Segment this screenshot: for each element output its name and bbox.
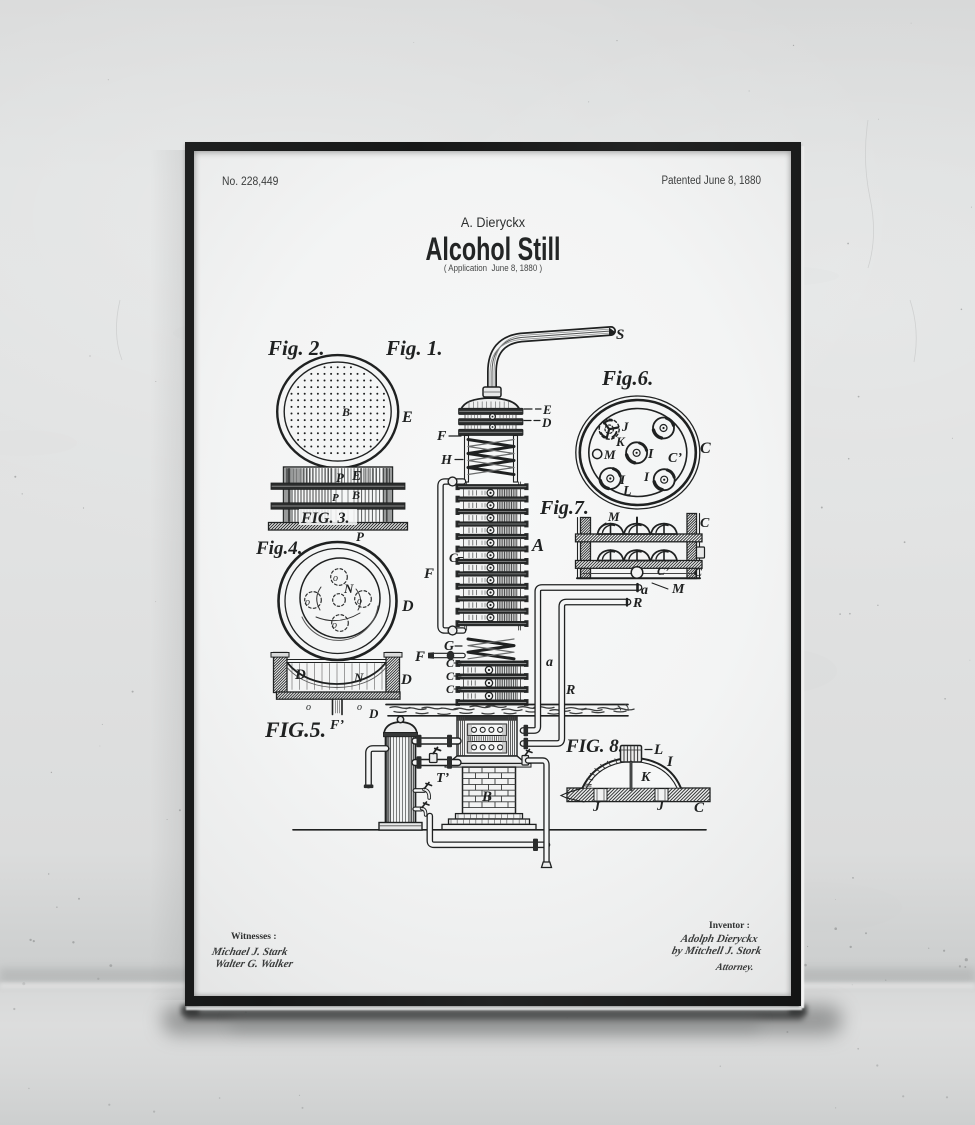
svg-text:N: N [343, 581, 354, 596]
svg-text:Fig.4.: Fig.4. [255, 538, 302, 559]
svg-text:D: D [541, 415, 552, 430]
svg-text:E: E [351, 469, 361, 484]
svg-text:B: B [351, 488, 360, 502]
svg-text:FIG.5.: FIG.5. [264, 717, 326, 742]
svg-text:P: P [332, 492, 339, 504]
svg-text:E: E [401, 409, 413, 426]
svg-text:M: M [607, 509, 620, 524]
svg-text:FIG. 8.: FIG. 8. [565, 736, 624, 757]
svg-text:M: M [603, 447, 616, 462]
svg-text:F: F [414, 649, 425, 665]
svg-text:D: D [368, 706, 379, 721]
svg-text:H: H [440, 453, 453, 468]
svg-text:I: I [643, 469, 650, 484]
svg-text:C’: C’ [668, 451, 682, 466]
svg-text:o: o [306, 702, 311, 713]
svg-text:A: A [531, 535, 544, 555]
svg-text:M: M [671, 582, 685, 597]
svg-text:L: L [653, 742, 663, 758]
svg-text:FIG. 3.: FIG. 3. [300, 510, 349, 527]
svg-text:P: P [336, 470, 345, 485]
svg-text:D: D [400, 672, 412, 688]
svg-text:F’: F’ [329, 718, 344, 733]
svg-text:C: C [700, 516, 710, 531]
svg-text:L: L [622, 484, 632, 499]
svg-text:o: o [357, 702, 362, 713]
svg-text:Fig. 2.: Fig. 2. [267, 336, 325, 360]
svg-text:C’: C’ [657, 564, 669, 578]
svg-text:N: N [353, 670, 364, 685]
svg-text:o: o [332, 620, 337, 631]
svg-text:C: C [694, 800, 705, 816]
svg-text:o: o [357, 596, 362, 607]
svg-text:D: D [401, 598, 414, 615]
svg-text:C: C [700, 440, 711, 457]
svg-text:T’: T’ [436, 771, 450, 786]
svg-text:R: R [565, 683, 575, 698]
svg-text:J: J [592, 800, 601, 815]
svg-text:B: B [481, 789, 492, 805]
svg-text:F: F [423, 566, 434, 582]
svg-text:K: K [615, 434, 626, 449]
svg-text:Fig.7.: Fig.7. [539, 497, 589, 519]
svg-text:J: J [656, 799, 665, 814]
svg-text:o: o [305, 597, 310, 608]
svg-text:C: C [449, 550, 458, 565]
svg-text:K: K [640, 770, 652, 785]
svg-text:B: B [341, 405, 350, 419]
svg-text:o: o [333, 573, 338, 584]
svg-text:P: P [356, 529, 365, 544]
svg-text:C: C [694, 565, 703, 579]
svg-text:S: S [616, 327, 624, 343]
svg-text:I: I [666, 754, 674, 770]
svg-text:Fig.6.: Fig.6. [601, 366, 653, 390]
svg-text:a: a [546, 655, 553, 670]
svg-text:D: D [294, 667, 306, 683]
svg-text:I: I [647, 447, 654, 462]
svg-text:J: J [621, 419, 629, 434]
svg-text:F: F [436, 429, 447, 444]
svg-text:R: R [632, 596, 642, 611]
svg-text:Fig. 1.: Fig. 1. [385, 336, 443, 360]
